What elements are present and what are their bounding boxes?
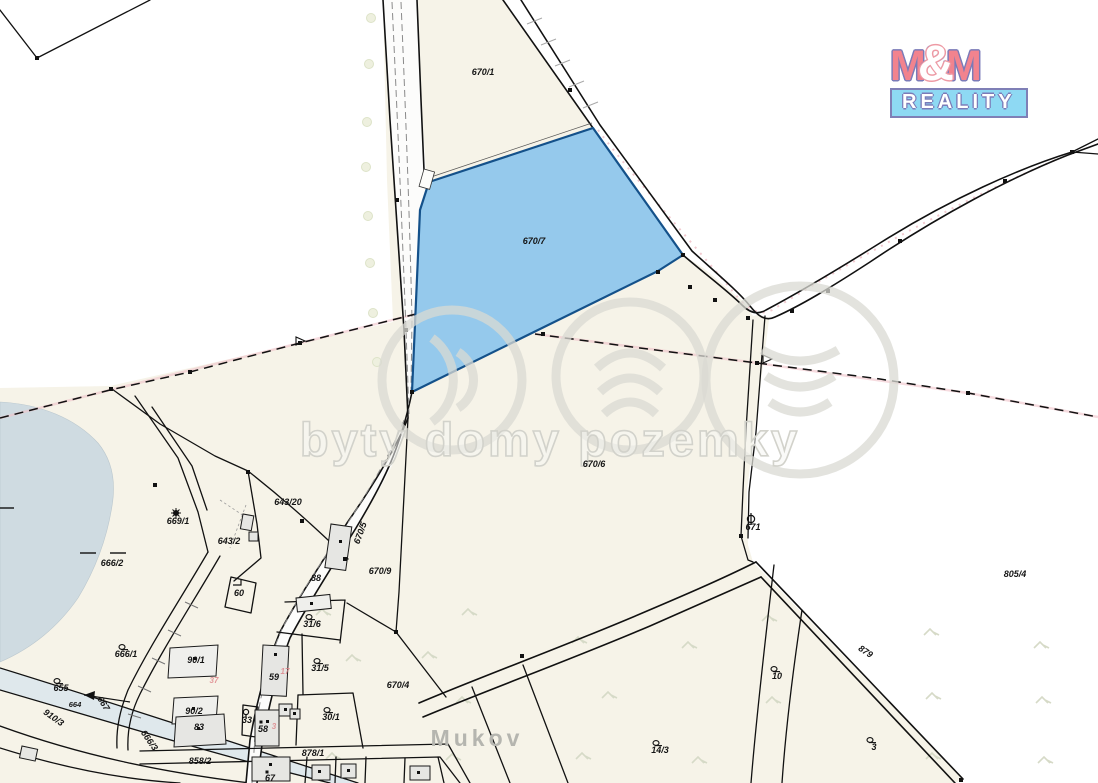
parcel-label-670-7: 670/7 [523, 236, 547, 246]
survey-point [188, 370, 192, 374]
meadow-mark-icon [926, 693, 941, 699]
parcel-label-670-1: 670/1 [472, 67, 495, 77]
parcel-label-83: 83 [194, 722, 204, 732]
cadastral-map: byty domy pozemky 670/1670/7670/6670/967… [0, 0, 1098, 783]
tree-icon [365, 60, 374, 69]
parcel-label-670-9: 670/9 [369, 566, 392, 576]
parcel-label-33: 33 [242, 715, 252, 725]
parcel-label-666-1: 666/1 [115, 649, 138, 659]
survey-point [153, 483, 157, 487]
survey-point [541, 332, 545, 336]
parcel-label-3: 3 [871, 742, 876, 752]
parcel-label-88: 88 [311, 573, 321, 583]
logo-ampersand: & [918, 35, 953, 91]
parcel-label-879: 879 [857, 643, 875, 660]
meadow-mark-icon [1038, 757, 1053, 763]
meadow-mark-icon [924, 629, 939, 635]
watermark-chevron-icon [762, 350, 838, 412]
parcel-label-670-6: 670/6 [583, 459, 607, 469]
survey-point [739, 534, 743, 538]
parcel-label-858-2: 858/2 [189, 756, 212, 766]
parcel-label-643-2: 643/2 [218, 536, 241, 546]
parcel-label-655: 655 [53, 683, 69, 693]
tree-icon [369, 309, 378, 318]
survey-point [746, 316, 750, 320]
tree-icon [364, 212, 373, 221]
survey-point [300, 519, 304, 523]
survey-point [343, 557, 347, 561]
parcel-label-664: 664 [69, 700, 82, 709]
survey-point [790, 309, 794, 313]
survey-point [568, 88, 572, 92]
mm-reality-logo: M&M REALITY [890, 42, 1040, 118]
parcel-label-17: 17 [281, 667, 290, 676]
parcel-label-666-2: 666/2 [101, 558, 124, 568]
parcel-label-805-4: 805/4 [1004, 569, 1027, 579]
survey-point [966, 391, 970, 395]
logo-mm-text: M&M [890, 42, 1040, 87]
parcel-label-30-1: 30/1 [322, 712, 340, 722]
survey-point [410, 390, 414, 394]
survey-point [1003, 179, 1007, 183]
watermark-text: byty domy pozemky [300, 413, 800, 466]
tree-icon [363, 118, 372, 127]
parcel-label-58: 58 [258, 724, 268, 734]
survey-point [1070, 150, 1074, 154]
survey-point [394, 630, 398, 634]
parcel-label-878-1: 878/1 [302, 748, 325, 758]
survey-point [520, 654, 524, 658]
parcel-label-90-1: 90/1 [187, 655, 205, 665]
parcel-label-59: 59 [269, 672, 279, 682]
parcel-label-10: 10 [772, 671, 782, 681]
parcel-label-90-2: 90/2 [185, 706, 203, 716]
survey-point [959, 778, 963, 782]
survey-point [898, 239, 902, 243]
parcel-label-67: 67 [265, 773, 276, 783]
tree-icons [362, 14, 382, 367]
survey-point [109, 387, 113, 391]
survey-point [713, 298, 717, 302]
parcel-label-60: 60 [234, 588, 244, 598]
survey-point [246, 470, 250, 474]
parcel-label-31-6: 31/6 [303, 619, 322, 629]
parcel-label-mukov: Mukov [431, 725, 524, 751]
survey-point [688, 285, 692, 289]
parcel-label-31-5: 31/5 [311, 663, 330, 673]
parcel-label-671: 671 [745, 522, 760, 532]
survey-point [681, 253, 685, 257]
parcel-label-14-3: 14/3 [651, 745, 669, 755]
parcel-label-670-4: 670/4 [387, 680, 410, 690]
tree-icon [366, 259, 375, 268]
tree-icon [367, 14, 376, 23]
tree-icon [362, 163, 371, 172]
survey-point [755, 361, 759, 365]
survey-point [656, 270, 660, 274]
survey-point [395, 198, 399, 202]
parcel-ground [0, 0, 963, 783]
parcel-label-37: 37 [210, 676, 219, 685]
parcel-label-643-20: 643/20 [274, 497, 302, 507]
meadow-mark-icon [1034, 642, 1049, 648]
logo-reality-bar: REALITY [890, 88, 1028, 118]
parcel-label-3: 3 [272, 722, 277, 731]
survey-point [35, 56, 39, 60]
parcel-label-669-1: 669/1 [167, 516, 190, 526]
meadow-mark-icon [1036, 697, 1051, 703]
